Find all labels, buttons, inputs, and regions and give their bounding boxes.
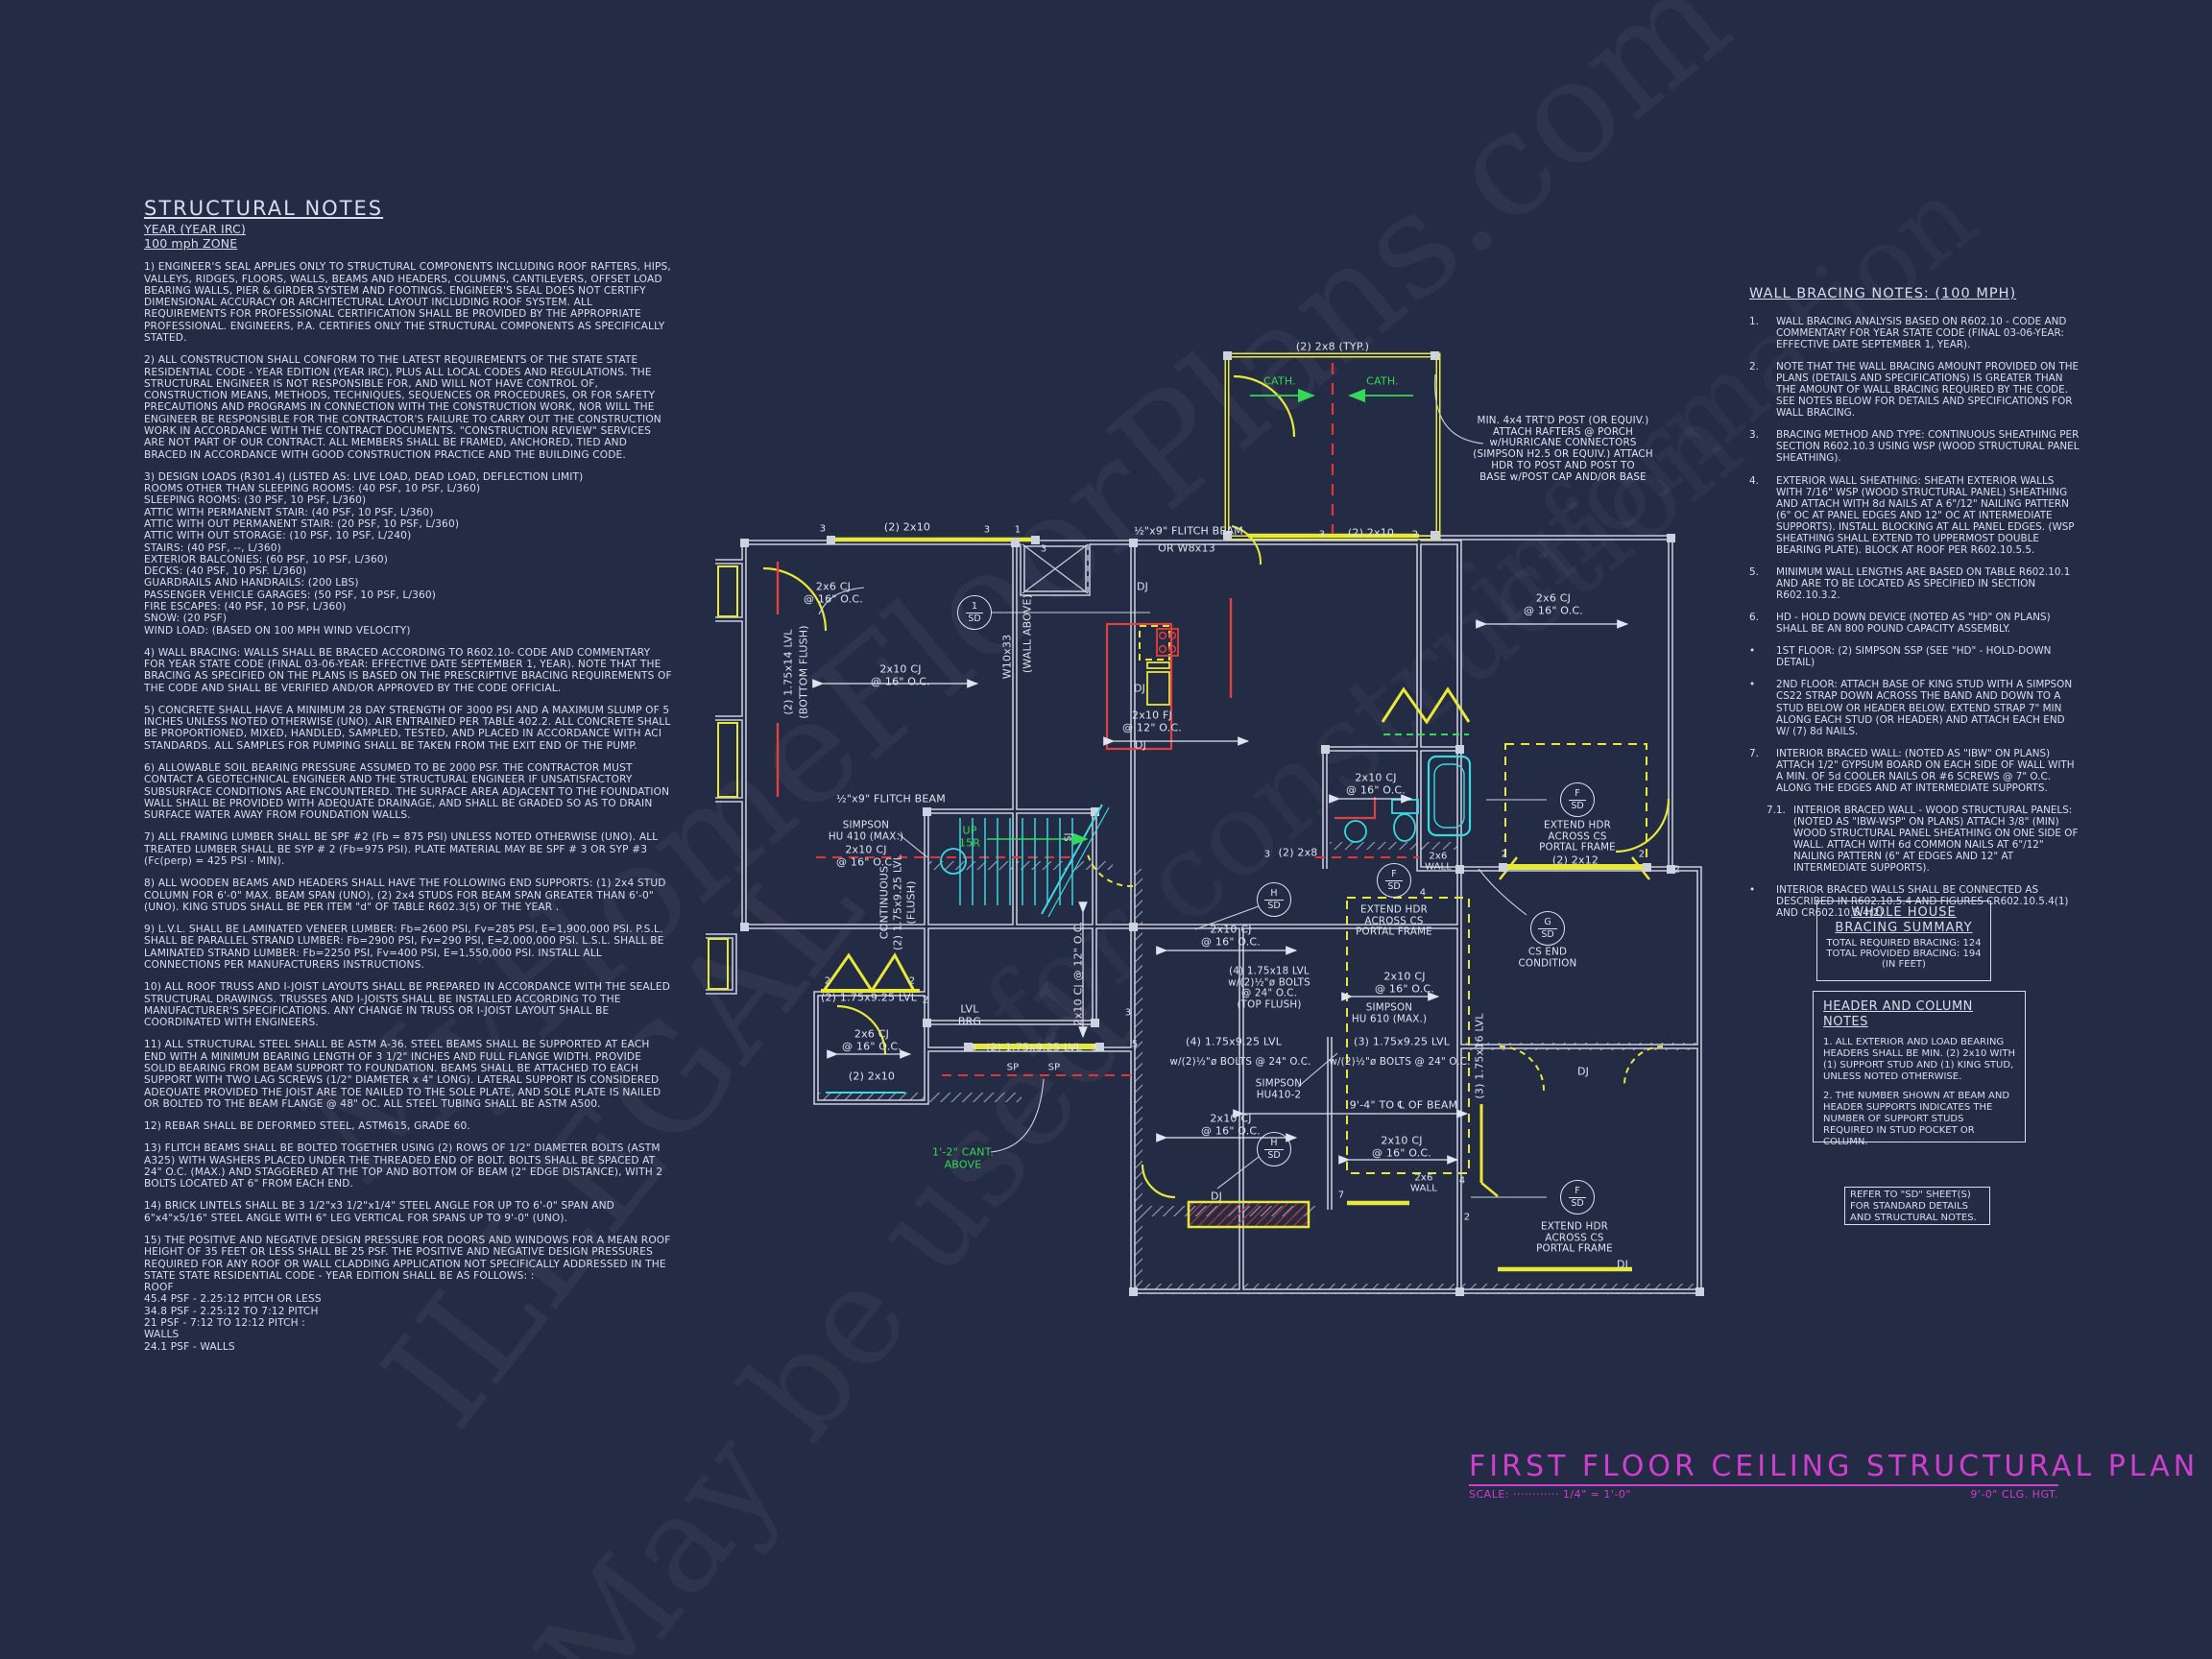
plan-label: 3 [1092, 1043, 1098, 1053]
dimension-arrows [823, 624, 1627, 1160]
section-marker: HSD [1257, 1132, 1291, 1166]
structural-note-paragraph: 4) WALL BRACING: WALLS SHALL BE BRACED A… [144, 647, 672, 694]
structural-note-paragraph: 8) ALL WOODEN BEAMS AND HEADERS SHALL HA… [144, 878, 672, 913]
wall-bracing-item: 5.MINIMUM WALL LENGTHS ARE BASED ON TABL… [1749, 566, 2080, 601]
structural-notes: STRUCTURAL NOTES YEAR (YEAR IRC) 100 mph… [144, 197, 672, 1353]
structural-note-paragraph: 14) BRICK LINTELS SHALL BE 3 1/2"x3 1/2"… [144, 1200, 672, 1224]
item-text: WALL BRACING ANALYSIS BASED ON R602.10 -… [1776, 316, 2080, 350]
structural-note-paragraph: 5) CONCRETE SHALL HAVE A MINIMUM 28 DAY … [144, 705, 672, 752]
yellow-framing [709, 355, 1669, 1269]
plan-label: W10x33 [1002, 635, 1015, 680]
plan-label: CS END CONDITION [1519, 947, 1577, 969]
plan-label: 2x10 CJ @ 16" O.C. [1372, 1135, 1431, 1159]
structural-note-paragraph: 3) DESIGN LOADS (R301.4) (LISTED AS: LIV… [144, 471, 672, 637]
plan-label: CATH. [1366, 376, 1399, 389]
plan-label: 2 [825, 975, 831, 986]
structural-notes-zone: 100 mph ZONE [144, 237, 672, 252]
section-marker-letter: 1 [966, 602, 983, 613]
plan-label: 2x10 CJ @ 16" O.C. [1201, 1113, 1261, 1137]
plan-label: 3 [1264, 849, 1271, 859]
structural-notes-year: YEAR (YEAR IRC) [144, 223, 672, 237]
item-marker: 4. [1749, 475, 1776, 556]
plan-label: 2x10 CJ @ 16" O.C. [1346, 772, 1406, 796]
plan-label: OR W8x13 [1158, 543, 1215, 556]
item-marker: 3. [1749, 429, 1776, 464]
plan-label: ½"x9" FLITCH BEAM [836, 794, 946, 806]
title-block: FIRST FLOOR CEILING STRUCTURAL PLAN SCAL… [1469, 1450, 2058, 1501]
plan-label: SIMPSON HU 610 (MAX.) [1352, 1002, 1427, 1024]
plan-label: CATH. [1263, 376, 1296, 389]
plan-label: 3 [971, 1043, 977, 1053]
plan-label: DJ [1134, 684, 1145, 696]
section-marker: FSD [1560, 782, 1595, 817]
item-text: HD - HOLD DOWN DEVICE (NOTED AS "HD" ON … [1776, 612, 2080, 635]
item-marker: 2. [1749, 361, 1776, 419]
plan-label: SIMPSON HU410-2 [1256, 1078, 1302, 1100]
item-marker: 1. [1749, 316, 1776, 350]
plan-label: (2) 2x8 [1279, 848, 1318, 860]
plan-label: 2 [1639, 849, 1646, 859]
structural-notes-body: 1) ENGINEER'S SEAL APPLIES ONLY TO STRUC… [144, 261, 672, 1353]
item-text: INTERIOR BRACED WALL: (NOTED AS "IBW" ON… [1776, 748, 2080, 794]
section-marker-letter: H [1264, 1139, 1283, 1150]
section-marker-sheet: SD [1571, 1199, 1583, 1209]
structural-note-paragraph: 13) FLITCH BEAMS SHALL BE BOLTED TOGETHE… [144, 1142, 672, 1190]
section-marker: GSD [1530, 911, 1565, 946]
plan-label: (4) 1.75x9.25 LVL [1186, 1037, 1282, 1049]
plan-label: 3 [1125, 1007, 1132, 1018]
plan-label: (2) 2x12 [1552, 855, 1599, 868]
plan-label: (WALL ABOVE) [1022, 594, 1035, 673]
plan-label: 2x6 WALL [1410, 1173, 1437, 1195]
bracing-summary-box: WHOLE HOUSE BRACING SUMMARY TOTAL REQUIR… [1816, 901, 1991, 981]
sheet-scale: SCALE: ············ 1/4" = 1'-0" [1469, 1488, 1631, 1501]
plan-label: 5 [1132, 1039, 1139, 1049]
item-marker: 6. [1749, 612, 1776, 635]
plan-label: (2) 2x10 [884, 522, 930, 535]
wall-bracing-item: 4.EXTERIOR WALL SHEATHING: SHEATH EXTERI… [1749, 475, 2080, 556]
ceiling-height: 9'-0" CLG. HGT. [1970, 1488, 2058, 1501]
item-text: 2ND FLOOR: ATTACH BASE OF KING STUD WITH… [1776, 679, 2080, 736]
plan-label: UP 15R [959, 825, 980, 849]
plan-label: 2 [1412, 529, 1419, 540]
section-marker: 1SD [957, 595, 992, 630]
plan-label: DJ [1211, 1191, 1222, 1204]
item-marker: 7.1. [1767, 805, 1793, 874]
plan-label: 2 [1502, 849, 1508, 859]
section-marker-letter: H [1264, 889, 1283, 901]
wall-bracing-item: 3.BRACING METHOD AND TYPE: CONTINUOUS SH… [1749, 429, 2080, 464]
wall-bracing-item: 2.NOTE THAT THE WALL BRACING AMOUNT PROV… [1749, 361, 2080, 419]
section-marker: FSD [1560, 1180, 1595, 1214]
section-marker: FSD [1377, 863, 1411, 898]
bracing-required: TOTAL REQUIRED BRACING: 124 [1817, 938, 1990, 949]
wall-bracing-body: 1.WALL BRACING ANALYSIS BASED ON R602.10… [1749, 316, 2080, 920]
plan-label: 2x10 CJ @ 16" O.C. [1375, 971, 1434, 995]
plan-label: w/(2)½"ø BOLTS @ 24" O.C. [1329, 1057, 1470, 1069]
plan-label: MIN. 4x4 TRT'D POST (OR EQUIV.) ATTACH R… [1473, 416, 1653, 483]
item-marker: 7. [1749, 748, 1776, 794]
plan-label: 7 [1338, 1190, 1345, 1200]
plan-label: (2) 1.75x9.25 LVL [821, 993, 917, 1005]
wall-bracing-item: 7.1.INTERIOR BRACED WALL - WOOD STRUCTUR… [1749, 805, 2080, 874]
header-column-note-2: 2. THE NUMBER SHOWN AT BEAM AND HEADER S… [1823, 1091, 2015, 1148]
plan-label: 2x6 WALL [1425, 852, 1452, 874]
plan-label: SJ [1065, 832, 1075, 841]
plan-label: DJ [1135, 740, 1146, 753]
plan-label: (2) 2x10 [1348, 528, 1394, 541]
structural-note-paragraph: 2) ALL CONSTRUCTION SHALL CONFORM TO THE… [144, 354, 672, 461]
plan-label: ½"x9" FLITCH BEAM [1134, 526, 1243, 539]
plan-label: EXTEND HDR ACROSS CS PORTAL FRAME [1536, 1221, 1613, 1255]
plan-label: (4) 1.75x18 LVL w/(2)½"ø BOLTS @ 24" O.C… [1228, 967, 1310, 1012]
plan-label: CONTINUOUS [879, 866, 892, 940]
plan-label: LVL BRG [958, 1003, 981, 1027]
header-column-notes-box: HEADER AND COLUMN NOTES 1. ALL EXTERIOR … [1813, 991, 2026, 1142]
item-text: NOTE THAT THE WALL BRACING AMOUNT PROVID… [1776, 361, 2080, 419]
plan-label: (2) 1.75x9.25 LVL [986, 1043, 1082, 1055]
plan-label: 2x6 CJ @ 16" O.C. [842, 1028, 902, 1052]
sd-reference-box: REFER TO "SD" SHEET(S) FOR STANDARD DETA… [1844, 1187, 1990, 1225]
item-text: BRACING METHOD AND TYPE: CONTINUOUS SHEA… [1776, 429, 2080, 464]
structural-note-paragraph: 6) ALLOWABLE SOIL BEARING PRESSURE ASSUM… [144, 762, 672, 821]
plan-label: DJ [1577, 1067, 1589, 1079]
structural-note-paragraph: 12) REBAR SHALL BE DEFORMED STEEL, ASTM6… [144, 1120, 672, 1132]
section-marker-sheet: SD [1387, 882, 1400, 892]
plan-label: (2) 2x8 (TYP.) [1296, 342, 1369, 354]
plan-label: (2) 1.75x9.25 LVL [893, 854, 905, 950]
section-marker: HSD [1257, 882, 1291, 917]
plan-label: (2) 2x10 [849, 1071, 895, 1084]
plan-label: 2x10 CJ @ 16" O.C. [871, 663, 930, 687]
header-column-notes-title: HEADER AND COLUMN NOTES [1823, 999, 2015, 1029]
plan-label: 3 [820, 523, 827, 534]
wall-bracing-notes: WALL BRACING NOTES: (100 MPH) 1.WALL BRA… [1749, 286, 2080, 920]
plan-label: 3 [1041, 543, 1047, 554]
header-column-note-1: 1. ALL EXTERIOR AND LOAD BEARING HEADERS… [1823, 1037, 2015, 1083]
section-marker-letter: F [1569, 1187, 1585, 1198]
section-marker-sheet: SD [1267, 1151, 1280, 1161]
plan-label: w/(2)½"ø BOLTS @ 24" O.C. [1169, 1057, 1310, 1069]
plan-label: 2 [1674, 864, 1681, 875]
bracing-provided: TOTAL PROVIDED BRACING: 194 [1817, 949, 1990, 959]
plan-label: 1'-2" CANT. ABOVE [932, 1146, 994, 1170]
plan-label: EXTEND HDR ACROSS CS PORTAL FRAME [1356, 904, 1432, 938]
plan-label: 4 [1420, 887, 1427, 898]
section-marker-sheet: SD [1571, 802, 1583, 811]
structural-note-paragraph: 10) ALL ROOF TRUSS AND I-JOIST LAYOUTS S… [144, 981, 672, 1028]
item-marker: • [1749, 884, 1776, 919]
section-marker-sheet: SD [1541, 930, 1553, 940]
plan-label: 2x6 CJ @ 16" O.C. [1524, 592, 1583, 616]
wall-bracing-item: 6.HD - HOLD DOWN DEVICE (NOTED AS "HD" O… [1749, 612, 2080, 635]
bracing-unit: (IN FEET) [1817, 959, 1990, 970]
plan-label: 2 [923, 995, 929, 1005]
plan-label: SP [1048, 1062, 1061, 1072]
plan-label: 2 [1464, 1212, 1471, 1222]
structural-note-paragraph: 7) ALL FRAMING LUMBER SHALL BE SPF #2 (F… [144, 831, 672, 867]
chimney [1022, 544, 1088, 593]
section-marker-letter: F [1569, 789, 1585, 801]
plan-label: 2 [909, 975, 916, 986]
item-text: INTERIOR BRACED WALL - WOOD STRUCTURAL P… [1793, 805, 2080, 874]
item-marker: • [1749, 679, 1776, 736]
section-marker-letter: G [1538, 918, 1556, 929]
wall-bracing-item: 7.INTERIOR BRACED WALL: (NOTED AS "IBW" … [1749, 748, 2080, 794]
bracing-summary-title1: WHOLE HOUSE [1817, 905, 1990, 921]
plan-label: 3 [1319, 529, 1326, 540]
plan-label: (BOTTOM FLUSH) [799, 625, 811, 719]
wall-bracing-item: 1.WALL BRACING ANALYSIS BASED ON R602.10… [1749, 316, 2080, 350]
item-marker: 5. [1749, 566, 1776, 601]
sheet-title: FIRST FLOOR CEILING STRUCTURAL PLAN [1469, 1450, 2058, 1486]
blueprint-sheet: MyHomeFloorPlans.comILLEGALMay be usedfo… [0, 0, 2212, 1659]
wall-bracing-item: •2ND FLOOR: ATTACH BASE OF KING STUD WIT… [1749, 679, 2080, 736]
plan-label: 2x10 CJ @ 16" O.C. [1201, 924, 1261, 948]
plan-label: DJ [1137, 582, 1148, 594]
plan-label: (3) 1.75x16 LVL [1475, 1013, 1487, 1098]
plan-label: 2x10 CJ @ 12" O.C. [1073, 922, 1086, 1026]
item-marker: • [1749, 645, 1776, 668]
structural-notes-title: STRUCTURAL NOTES [144, 197, 672, 220]
plan-label: 3 [984, 524, 991, 535]
section-marker-letter: F [1385, 870, 1402, 881]
section-marker-sheet: SD [968, 614, 980, 624]
plan-label: 2x6 CJ @ 16" O.C. [804, 581, 863, 605]
plan-label: (3) 1.75x9.25 LVL [1354, 1037, 1450, 1049]
plan-label: 9'-4" TO ℄ OF BEAM [1350, 1100, 1458, 1113]
wall-bracing-title: WALL BRACING NOTES: (100 MPH) [1749, 286, 2080, 302]
item-text: MINIMUM WALL LENGTHS ARE BASED ON TABLE … [1776, 566, 2080, 601]
plan-label: 1 [1015, 524, 1022, 535]
plan-label: 2x10 FJ @ 12" O.C. [1122, 709, 1182, 733]
plan-label: SP [1007, 1062, 1020, 1072]
plan-label: (FLUSH) [906, 880, 919, 924]
section-marker-sheet: SD [1267, 902, 1280, 911]
structural-note-paragraph: 11) ALL STRUCTURAL STEEL SHALL BE ASTM A… [144, 1039, 672, 1110]
wall-bracing-item: •1ST FLOOR: (2) SIMPSON SSP (SEE "HD" - … [1749, 645, 2080, 668]
structural-note-paragraph: 1) ENGINEER'S SEAL APPLIES ONLY TO STRUC… [144, 261, 672, 344]
structural-note-paragraph: 9) L.V.L. SHALL BE LAMINATED VENEER LUMB… [144, 924, 672, 971]
item-text: 1ST FLOOR: (2) SIMPSON SSP (SEE "HD" - H… [1776, 645, 2080, 668]
plan-label: SIMPSON HU 410 (MAX.) [829, 820, 903, 842]
item-text: EXTERIOR WALL SHEATHING: SHEATH EXTERIOR… [1776, 475, 2080, 556]
red-elements [778, 363, 1419, 1075]
plan-label: DJ [1617, 1260, 1628, 1272]
bracing-summary-title2: BRACING SUMMARY [1817, 921, 1990, 936]
plan-label: 4 [1459, 1175, 1466, 1186]
structural-note-paragraph: 15) THE POSITIVE AND NEGATIVE DESIGN PRE… [144, 1235, 672, 1353]
plan-label: (2) 1.75x14 LVL [783, 629, 796, 714]
plan-label: EXTEND HDR ACROSS CS PORTAL FRAME [1539, 820, 1616, 854]
